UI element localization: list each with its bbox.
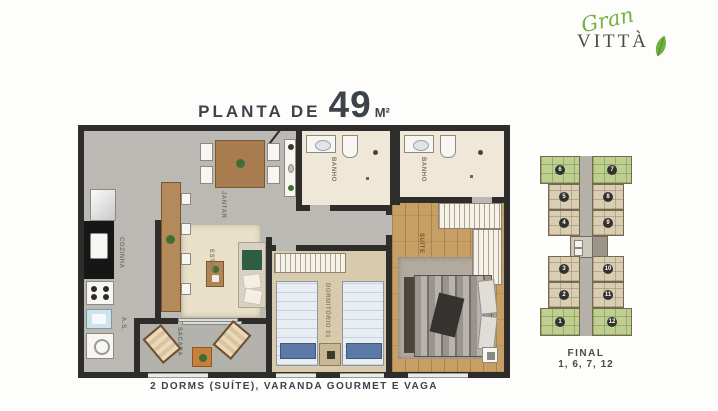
- floor-drain-icon: [366, 177, 369, 180]
- flyer-page: Gran VITTÀ PLANTA DE 49 M²: [0, 0, 718, 411]
- double-bed: [404, 275, 498, 355]
- bar-stool: [181, 223, 191, 235]
- room-label-banho-suite: BANHO: [420, 157, 426, 182]
- bar-stool: [181, 283, 191, 295]
- unit-number: 7: [607, 165, 617, 175]
- wall: [504, 125, 510, 378]
- unit-number: 8: [603, 192, 613, 202]
- wall: [296, 205, 310, 211]
- room-label-as: A.S.: [120, 317, 126, 331]
- keyplan-unit-6: 6: [540, 156, 580, 184]
- final-units-note: FINAL 1, 6, 7, 12: [528, 348, 644, 370]
- keyplan-unit-12: 12: [592, 308, 632, 336]
- title-area-value: 49: [329, 84, 372, 126]
- unit-number: 5: [559, 192, 569, 202]
- keyplan-unit-8: 8: [592, 184, 624, 210]
- wall: [386, 211, 392, 215]
- window: [276, 373, 316, 378]
- wall: [330, 205, 392, 211]
- window: [148, 373, 208, 378]
- single-bed: [342, 281, 384, 366]
- washer-icon: [86, 333, 114, 359]
- title-area-unit: M²: [375, 105, 390, 120]
- dining-chair: [200, 166, 213, 184]
- building-key-plan: 6 5 4 3 2 1 7 8 9 10 11 12: [538, 148, 634, 344]
- page-title: PLANTA DE 49 M²: [78, 84, 510, 126]
- plant-icon: [236, 159, 245, 168]
- keyplan-unit-2: 2: [548, 282, 580, 308]
- keyplan-unit-3: 3: [548, 256, 580, 282]
- bathroom-sink: [306, 135, 336, 153]
- unit-number: 6: [555, 165, 565, 175]
- keyplan-unit-10: 10: [592, 256, 624, 282]
- leaf-icon: [648, 31, 674, 60]
- fridge-icon: [90, 189, 116, 221]
- single-bed: [276, 281, 318, 366]
- logo-brand-word: VITTÀ: [577, 31, 649, 53]
- wall: [296, 245, 392, 251]
- room-label-dormitorio: DORMITÓRIO 01: [324, 283, 330, 338]
- keyplan-unit-4: 4: [548, 210, 580, 236]
- room-label-estar: ESTAR: [208, 249, 214, 272]
- bar-stool: [181, 253, 191, 265]
- plan-caption: 2 DORMS (SUÍTE), VARANDA GOURMET E VAGA: [60, 381, 528, 392]
- keyplan-elevator-core: [570, 236, 594, 258]
- wall: [390, 131, 400, 205]
- final-units: 1, 6, 7, 12: [528, 359, 644, 370]
- unit-number: 9: [603, 218, 613, 228]
- title-prefix: PLANTA DE: [198, 102, 320, 122]
- dining-chair: [200, 143, 213, 161]
- dining-chair: [267, 166, 280, 184]
- sofa: [238, 242, 266, 308]
- keyplan-stair-core: [592, 236, 608, 258]
- keyplan-unit-11: 11: [592, 282, 624, 308]
- unit-number: 1: [555, 317, 565, 327]
- window: [408, 373, 468, 378]
- stove-icon: [86, 281, 114, 305]
- wall: [134, 324, 140, 372]
- keyplan-unit-9: 9: [592, 210, 624, 236]
- room-label-sacada: SACADA: [176, 327, 182, 356]
- dining-chair: [267, 143, 280, 161]
- wall: [272, 245, 276, 251]
- room-label-suite: SUÍTE: [418, 233, 424, 254]
- wall: [296, 131, 302, 205]
- entry-console: [284, 139, 296, 197]
- laundry-tank-icon: [86, 309, 112, 329]
- plant-icon: [166, 235, 175, 244]
- wall: [266, 237, 272, 372]
- unit-number: 12: [607, 317, 617, 327]
- kitchen-sink-icon: [90, 233, 108, 259]
- room-label-jantar: JANTAR: [220, 191, 226, 219]
- wall: [386, 235, 392, 372]
- unit-number: 2: [559, 290, 569, 300]
- unit-number: 11: [603, 290, 613, 300]
- bathroom-sink: [404, 135, 434, 153]
- wardrobe: [438, 203, 502, 229]
- floor-drain-icon: [470, 175, 473, 178]
- keyplan-unit-5: 5: [548, 184, 580, 210]
- final-label: FINAL: [528, 348, 644, 359]
- wall: [78, 125, 264, 131]
- unit-number: 3: [559, 264, 569, 274]
- keyplan-unit-7: 7: [592, 156, 632, 184]
- window: [340, 373, 384, 378]
- wall: [238, 318, 268, 324]
- wall: [134, 318, 178, 324]
- floor-plan: JANTAR COZINHA A.S. ESTAR SACADA DORMITÓ…: [78, 125, 510, 378]
- shower-icon: [478, 150, 483, 155]
- bar-stool: [181, 193, 191, 205]
- nightstand: [319, 343, 341, 366]
- room-label-cozinha: COZINHA: [118, 237, 124, 269]
- balcony-side-table: [192, 347, 212, 367]
- room-label-banho-social: BANHO: [330, 157, 336, 182]
- bar-counter: [161, 182, 181, 312]
- ac-unit-icon: [482, 347, 498, 363]
- logo: Gran VITTÀ: [575, 6, 675, 66]
- toilet-icon: [440, 135, 456, 158]
- unit-number: 10: [603, 264, 613, 274]
- wardrobe: [274, 253, 346, 273]
- unit-number: 4: [559, 218, 569, 228]
- keyplan-unit-1: 1: [540, 308, 580, 336]
- shower-icon: [373, 150, 378, 155]
- wall: [290, 125, 510, 131]
- toilet-icon: [342, 135, 358, 158]
